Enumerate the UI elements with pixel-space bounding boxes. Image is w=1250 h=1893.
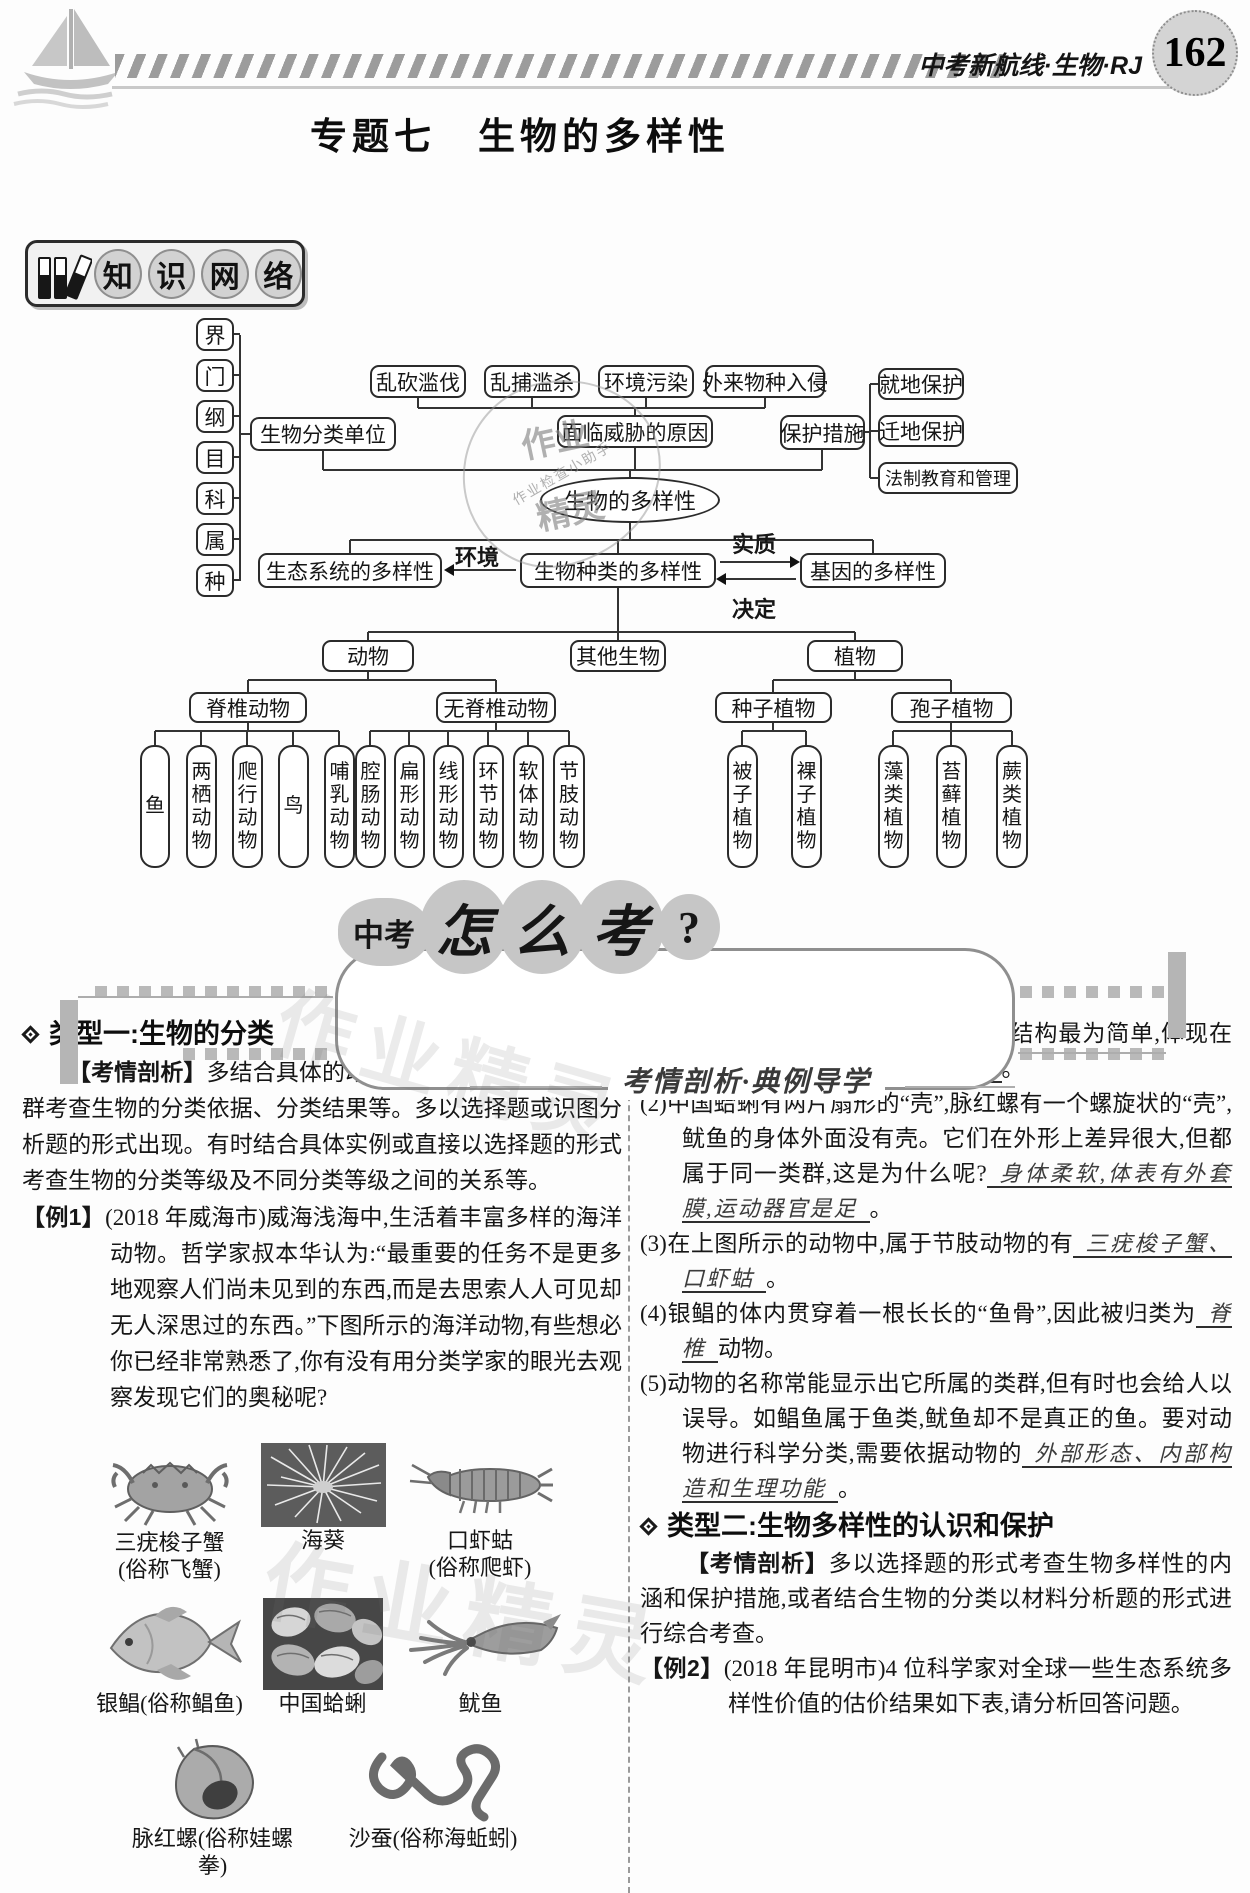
diagram-node-mollusk: 软体动物 [513,745,544,868]
subtitle-line-right [905,1086,1015,1088]
exam-banner-bubbles: 中考 怎 么 考 ? [338,880,720,974]
diagram-node-annelid: 环节动物 [473,745,504,868]
heading-text: 类型二:生物多样性的认识和保护 [667,1506,1054,1546]
banner-big-char: 怎 [420,880,508,974]
mantis-shrimp-image [405,1443,555,1527]
diagram-node-deforestation: 乱砍滥伐 [370,365,466,398]
analysis-label: 【考情剖析】 [68,1059,207,1085]
question-item-2: (2)中国蛤蜊有两片扇形的“壳”,脉红螺有一个螺旋状的“壳”,鱿鱼的身体外面没有… [640,1086,1232,1226]
dotted-decoration [183,1048,335,1060]
photo-clams: 中国蛤蜊 [260,1598,385,1717]
diagram-node-bird: 鸟 [278,745,309,868]
banner-question-mark: ? [658,894,720,960]
diagram-node-flatworm: 扁形动物 [394,745,425,868]
example2-label: 【例2】 [640,1655,724,1681]
diagram-node-rank-order: 目 [196,441,234,474]
diagram-node-seed-plant: 种子植物 [715,692,832,723]
edge-label-environment: 环境 [455,540,499,572]
diagram-node-nematode: 线形动物 [433,745,464,868]
photo-sea-anemone: 海葵 [258,1443,388,1554]
page-number-badge: 162 [1152,10,1238,96]
diagram-node-species-diversity: 生物种类的多样性 [520,553,716,588]
banner-subtitle: 考情剖析·典例导学 [608,1060,885,1100]
crab-image [92,1443,247,1529]
exam-analysis-paragraph-2: 【考情剖析】多以选择题的形式考查生物多样性的内涵和保护措施,或者结合生物的分类以… [640,1546,1232,1651]
squid-image [398,1598,563,1690]
section-heading-type2: 类型二:生物多样性的认识和保护 [640,1506,1232,1546]
diagram-node-rank-class: 纲 [196,400,234,433]
diagram-node-reptile: 爬行动物 [232,745,263,868]
diagram-node-ecosystem-diversity: 生态系统的多样性 [258,553,442,588]
diagram-node-invertebrate: 无脊椎动物 [436,692,556,723]
diagram-node-pollution: 环境污染 [598,365,694,398]
example1-paragraph: 【例1】(2018 年威海市)威海浅海中,生活着丰富多样的海洋动物。哲学家叔本华… [22,1199,622,1416]
rapa-whelk-image [130,1737,295,1825]
diagram-node-rank-kingdom: 界 [196,318,234,351]
diagram-node-overhunting: 乱捕滥杀 [484,365,580,398]
diagram-node-angiosperm: 被子植物 [727,745,758,868]
diagram-node-arthropod: 节肢动物 [553,745,585,868]
diagram-node-algae: 藻类植物 [878,745,909,868]
diagram-node-plant: 植物 [807,640,903,672]
corner-bracket-left [60,1000,78,1084]
diagram-node-legal-management: 法制教育和管理 [878,462,1018,494]
photo-silver-pomfret: 银鲳(俗称鲳鱼) [92,1598,247,1717]
photo-rapa-whelk: 脉红螺(俗称娃螺拳) [130,1737,295,1879]
diagram-node-amphibian: 两栖动物 [186,745,217,868]
banner-line [1018,1052,1166,1054]
dotted-decoration [1020,1048,1166,1060]
silver-pomfret-image [92,1598,247,1690]
diagram-node-gene-diversity: 基因的多样性 [800,553,946,588]
right-column: (1)在上图所示的动物中,海葵的形态结构最为简单,体现在身体呈辐射对称,有口无肛… [640,1016,1232,1721]
diagram-node-mammal: 哺乳动物 [324,745,355,868]
photo-crab: 三疣梭子蟹(俗称飞蟹) [92,1443,247,1583]
edge-label-essence: 实质 [732,527,776,559]
diagram-node-animal: 动物 [322,640,414,672]
corner-bracket-right [1168,952,1186,1038]
diamond-bullet-icon [639,1517,657,1535]
diamond-bullet-icon [21,1025,39,1043]
photo-squid: 鱿鱼 [398,1598,563,1717]
diagram-node-biodiversity: 生物的多样性 [540,477,720,523]
sea-anemone-image [258,1443,388,1527]
banner-prefix: 中考 [338,898,430,966]
diagram-node-rank-genus: 属 [196,523,234,556]
column-divider [628,1015,630,1893]
diagram-node-vertebrate: 脊椎动物 [189,692,307,723]
analysis-label: 【考情剖析】 [686,1550,829,1576]
clams-image [260,1598,385,1690]
diagram-node-cnidarian: 腔肠动物 [355,745,386,868]
photo-sandworm: 沙蚕(俗称海蚯蚓) [348,1737,518,1852]
diagram-node-invasive-species: 外来物种入侵 [705,365,825,398]
sandworm-image [348,1737,518,1825]
diagram-node-rank-species: 种 [196,564,234,597]
diagram-node-in-situ: 就地保护 [878,368,964,400]
diagram-node-threat-reason: 面临威胁的原因 [557,415,713,448]
question-item-4: (4)银鲳的体内贯穿着一根长长的“鱼骨”,因此被归类为脊椎动物。 [640,1296,1232,1366]
diagram-node-moss: 苔藓植物 [936,745,967,868]
diagram-node-fern: 蕨类植物 [996,745,1028,868]
dotted-decoration [1020,986,1166,998]
edge-label-decide: 决定 [732,592,776,624]
diagram-node-ex-situ: 迁地保护 [878,415,964,447]
diagram-node-rank-phylum: 门 [196,359,234,392]
diagram-node-protection: 保护措施 [780,415,865,450]
question-item-5: (5)动物的名称常能显示出它所属的类群,但有时也会给人以误导。如鲳鱼属于鱼类,鱿… [640,1366,1232,1506]
banner-big-char: 考 [576,880,664,974]
textbook-page: 中考新航线·生物·RJ 162 专题七 生物的多样性 知 识 网 络 [0,0,1250,1893]
diagram-node-other-organisms: 其他生物 [570,640,666,672]
diagram-node-spore-plant: 孢子植物 [891,692,1012,723]
question-item-3: (3)在上图所示的动物中,属于节肢动物的有三疣梭子蟹、口虾蛄。 [640,1226,1232,1296]
diagram-node-classification-unit: 生物分类单位 [250,417,396,451]
example1-label: 【例1】 [22,1204,105,1230]
diagram-node-fish: 鱼 [140,745,170,868]
subtitle-line-left [470,1086,602,1088]
diagram-node-gymnosperm: 裸子植物 [791,745,822,868]
banner-line [78,996,333,998]
diagram-node-rank-family: 科 [196,482,234,515]
photo-mantis-shrimp: 口虾蛄(俗称爬虾) [405,1443,555,1581]
example2-paragraph: 【例2】(2018 年昆明市)4 位科学家对全球一些生态系统多样性价值的估价结果… [640,1651,1232,1721]
banner-big-char: 么 [498,880,586,974]
